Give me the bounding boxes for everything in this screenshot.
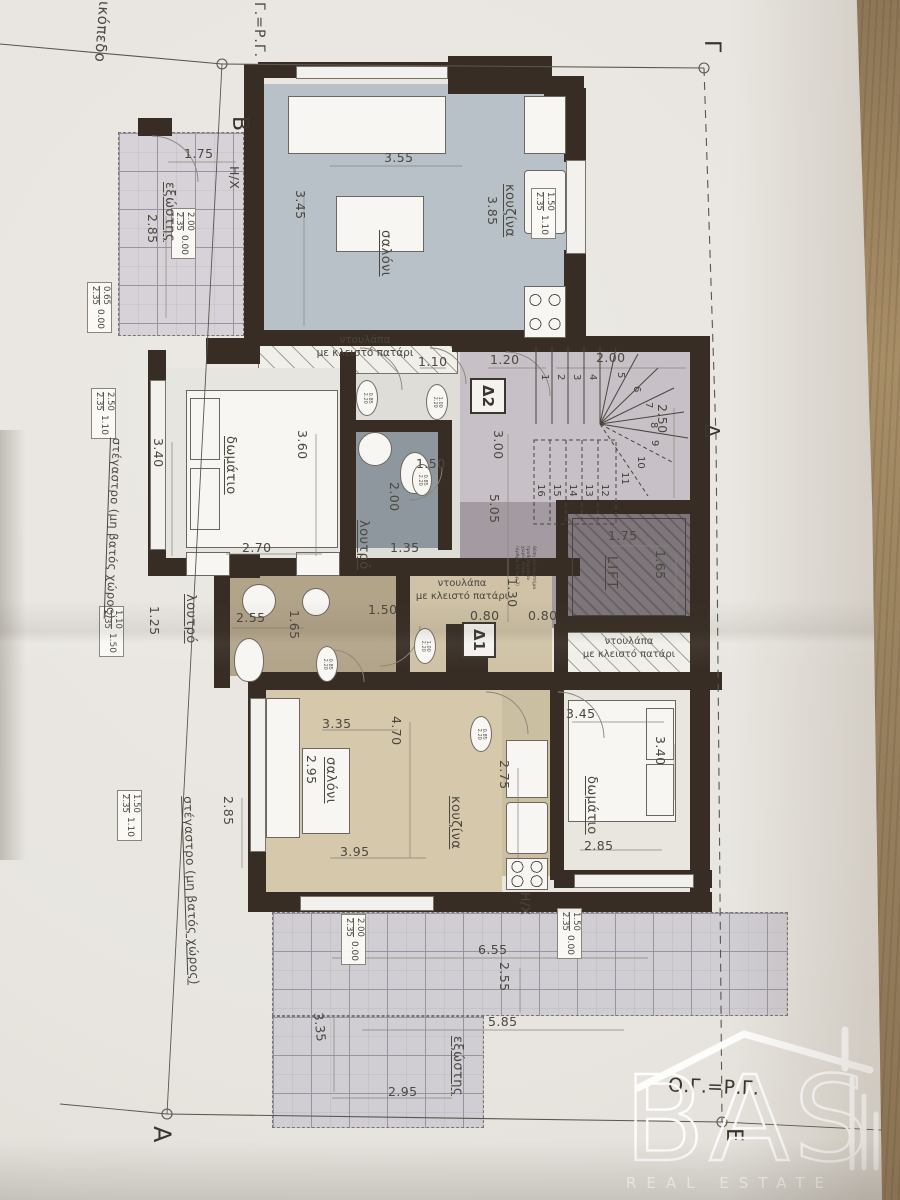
dim-label: 1.75 <box>184 148 213 161</box>
dim-label: 1.50 <box>368 604 397 617</box>
dim-label: 5.85 <box>488 1016 517 1029</box>
dim-label: 3.55 <box>384 152 413 165</box>
window-level-marker: 0.652.350.00 <box>87 282 112 333</box>
closet-label-line2: με κλειστό πατάρι <box>272 347 458 360</box>
dim-label: 3.40 <box>152 438 165 467</box>
dim-label: 2.00 <box>596 352 625 365</box>
room-label-heater-top: Η/Χ <box>228 166 241 189</box>
room-label-bedroom-top: δωμάτιο <box>224 436 237 495</box>
door-tag: 0.85 2.20 <box>316 646 338 682</box>
dim-label: 3.35 <box>312 1012 328 1043</box>
closet-label: ντουλάπα με κλειστό πατάρι <box>560 636 698 661</box>
svg-text:16: 16 <box>535 484 546 497</box>
window-level-marker: 1.502.350.00 <box>557 908 582 959</box>
dim-label: 0.80 <box>470 610 499 623</box>
window-level-marker: 1.502.351.10 <box>531 188 556 239</box>
closet-label-line1: ντουλάπα <box>560 636 698 649</box>
dim-label: 1.20 <box>490 354 519 367</box>
dim-label: 5.05 <box>488 494 501 523</box>
svg-text:9: 9 <box>649 440 660 446</box>
room-label-bedroom-bottom: δωμάτιο <box>585 776 598 835</box>
drawing-paper: 1 2 3 4 5 6 7 8 9 10 11 12 13 14 15 16 0… <box>0 0 900 1200</box>
svg-text:2: 2 <box>555 374 566 380</box>
svg-text:4: 4 <box>587 374 598 380</box>
dim-label: 2.85 <box>222 796 235 825</box>
dim-label: 2.55 <box>236 612 265 625</box>
room-label-living-top: σαλόνι <box>379 230 392 277</box>
bas-real-estate-logo: BAS REAL ESTATE <box>618 1018 890 1192</box>
closet-label: ντουλάπα με κλειστό πατάρι <box>272 334 458 360</box>
building-line-label-top: Γ.=Ρ.Γ. <box>252 2 266 58</box>
window-level-marker: 2.002.350.00 <box>341 914 366 965</box>
corner-letter-b: Β <box>228 116 250 132</box>
dim-label: 2.00 <box>388 482 401 511</box>
closet-label-line2: με κλειστό πατάρι <box>396 591 528 604</box>
dim-label: 0.80 <box>528 610 557 623</box>
window-level-marker: 1.502.351.10 <box>117 790 142 841</box>
svg-text:1: 1 <box>539 374 550 380</box>
room-label-kitchen-bottom: κουζίνα <box>449 796 462 849</box>
dim-label: 3.45 <box>566 708 595 721</box>
svg-text:7: 7 <box>643 402 654 408</box>
dim-label: 1.65 <box>288 610 301 639</box>
dim-label: 2.50 <box>656 404 669 433</box>
door-tag: 1.00 2.20 <box>414 628 436 664</box>
svg-text:11: 11 <box>619 472 630 485</box>
svg-text:15: 15 <box>551 484 562 497</box>
room-label-bath-bottom: λουτρό <box>184 594 197 644</box>
dim-label: 3.95 <box>340 846 369 859</box>
room-label-balcony-top: εξώστης <box>163 182 176 242</box>
dim-label: 2.95 <box>388 1086 417 1099</box>
corner-letter-d: Δ <box>702 424 722 438</box>
window-level-marker: 2.502.351.10 <box>91 388 116 439</box>
room-label-kitchen-top: κουζίνα <box>503 184 516 237</box>
svg-text:13: 13 <box>583 484 594 497</box>
svg-text:10: 10 <box>635 456 646 469</box>
dim-label: 2.95 <box>305 755 318 784</box>
room-label-living-bottom: σαλόνι <box>324 757 337 804</box>
dim-label: 1.50 <box>416 458 445 471</box>
dim-label: 4.70 <box>390 716 403 745</box>
unit-tag-d1: Δ1 <box>462 622 496 658</box>
dim-label: 3.40 <box>654 736 667 765</box>
logo-name: BAS <box>624 1050 873 1188</box>
room-label-balcony-bottom: εξώστης <box>451 1036 464 1096</box>
door-tag: 0.85 2.20 <box>356 380 378 416</box>
dim-label: 2.70 <box>242 542 271 555</box>
dim-label: 3.60 <box>296 430 309 459</box>
dim-label: 6.55 <box>478 944 507 957</box>
closet-label-line2: με κλειστό πατάρι <box>560 649 698 662</box>
dim-label: 2.85 <box>146 214 159 243</box>
svg-text:5: 5 <box>615 372 626 378</box>
dim-label: 2.85 <box>584 840 613 853</box>
dim-label: 2.55 <box>498 962 511 991</box>
room-label-heater-bottom: Η/Χ <box>519 892 532 915</box>
corner-letter-a: Α <box>150 1126 174 1143</box>
lift-note: θέση ανελκυστήρα προδιαγραφών χωρίς σκάφ… <box>513 546 536 589</box>
corner-letter-g: Γ <box>700 40 722 53</box>
closet-label-line1: ντουλάπα <box>272 334 458 347</box>
svg-text:14: 14 <box>567 484 578 497</box>
svg-text:6: 6 <box>631 386 642 392</box>
dim-label: 2.75 <box>498 760 511 789</box>
lift-label: LIFT <box>605 556 618 590</box>
door-tag: 1.00 2.20 <box>426 384 448 420</box>
dim-label: 3.35 <box>322 718 351 731</box>
dim-label: 3.45 <box>294 190 307 219</box>
closet-label: ντουλάπα με κλειστό πατάρι <box>396 578 528 603</box>
living-bottom-label-box: 2.95 σαλόνι <box>302 748 350 834</box>
dim-label: 3.85 <box>486 196 499 225</box>
dim-label: 1.75 <box>608 530 637 543</box>
room-label-bath-top: λουτρό <box>357 520 370 570</box>
dim-label: 1.35 <box>390 542 419 555</box>
dim-label: 1.25 <box>148 606 161 635</box>
svg-text:3: 3 <box>571 374 582 380</box>
logo-tagline: REAL ESTATE <box>626 1174 834 1192</box>
floor-plan-photo: 1 2 3 4 5 6 7 8 9 10 11 12 13 14 15 16 0… <box>0 0 900 1200</box>
dim-label: 3.00 <box>492 430 505 459</box>
unit-tag-d2: Δ2 <box>470 378 506 414</box>
door-tag: 0.85 2.20 <box>470 716 492 752</box>
closet-label-line1: ντουλάπα <box>396 578 528 591</box>
dim-label: 1.65 <box>654 550 667 579</box>
plot-label: οικόπεδο <box>92 0 112 63</box>
svg-text:12: 12 <box>599 484 610 497</box>
